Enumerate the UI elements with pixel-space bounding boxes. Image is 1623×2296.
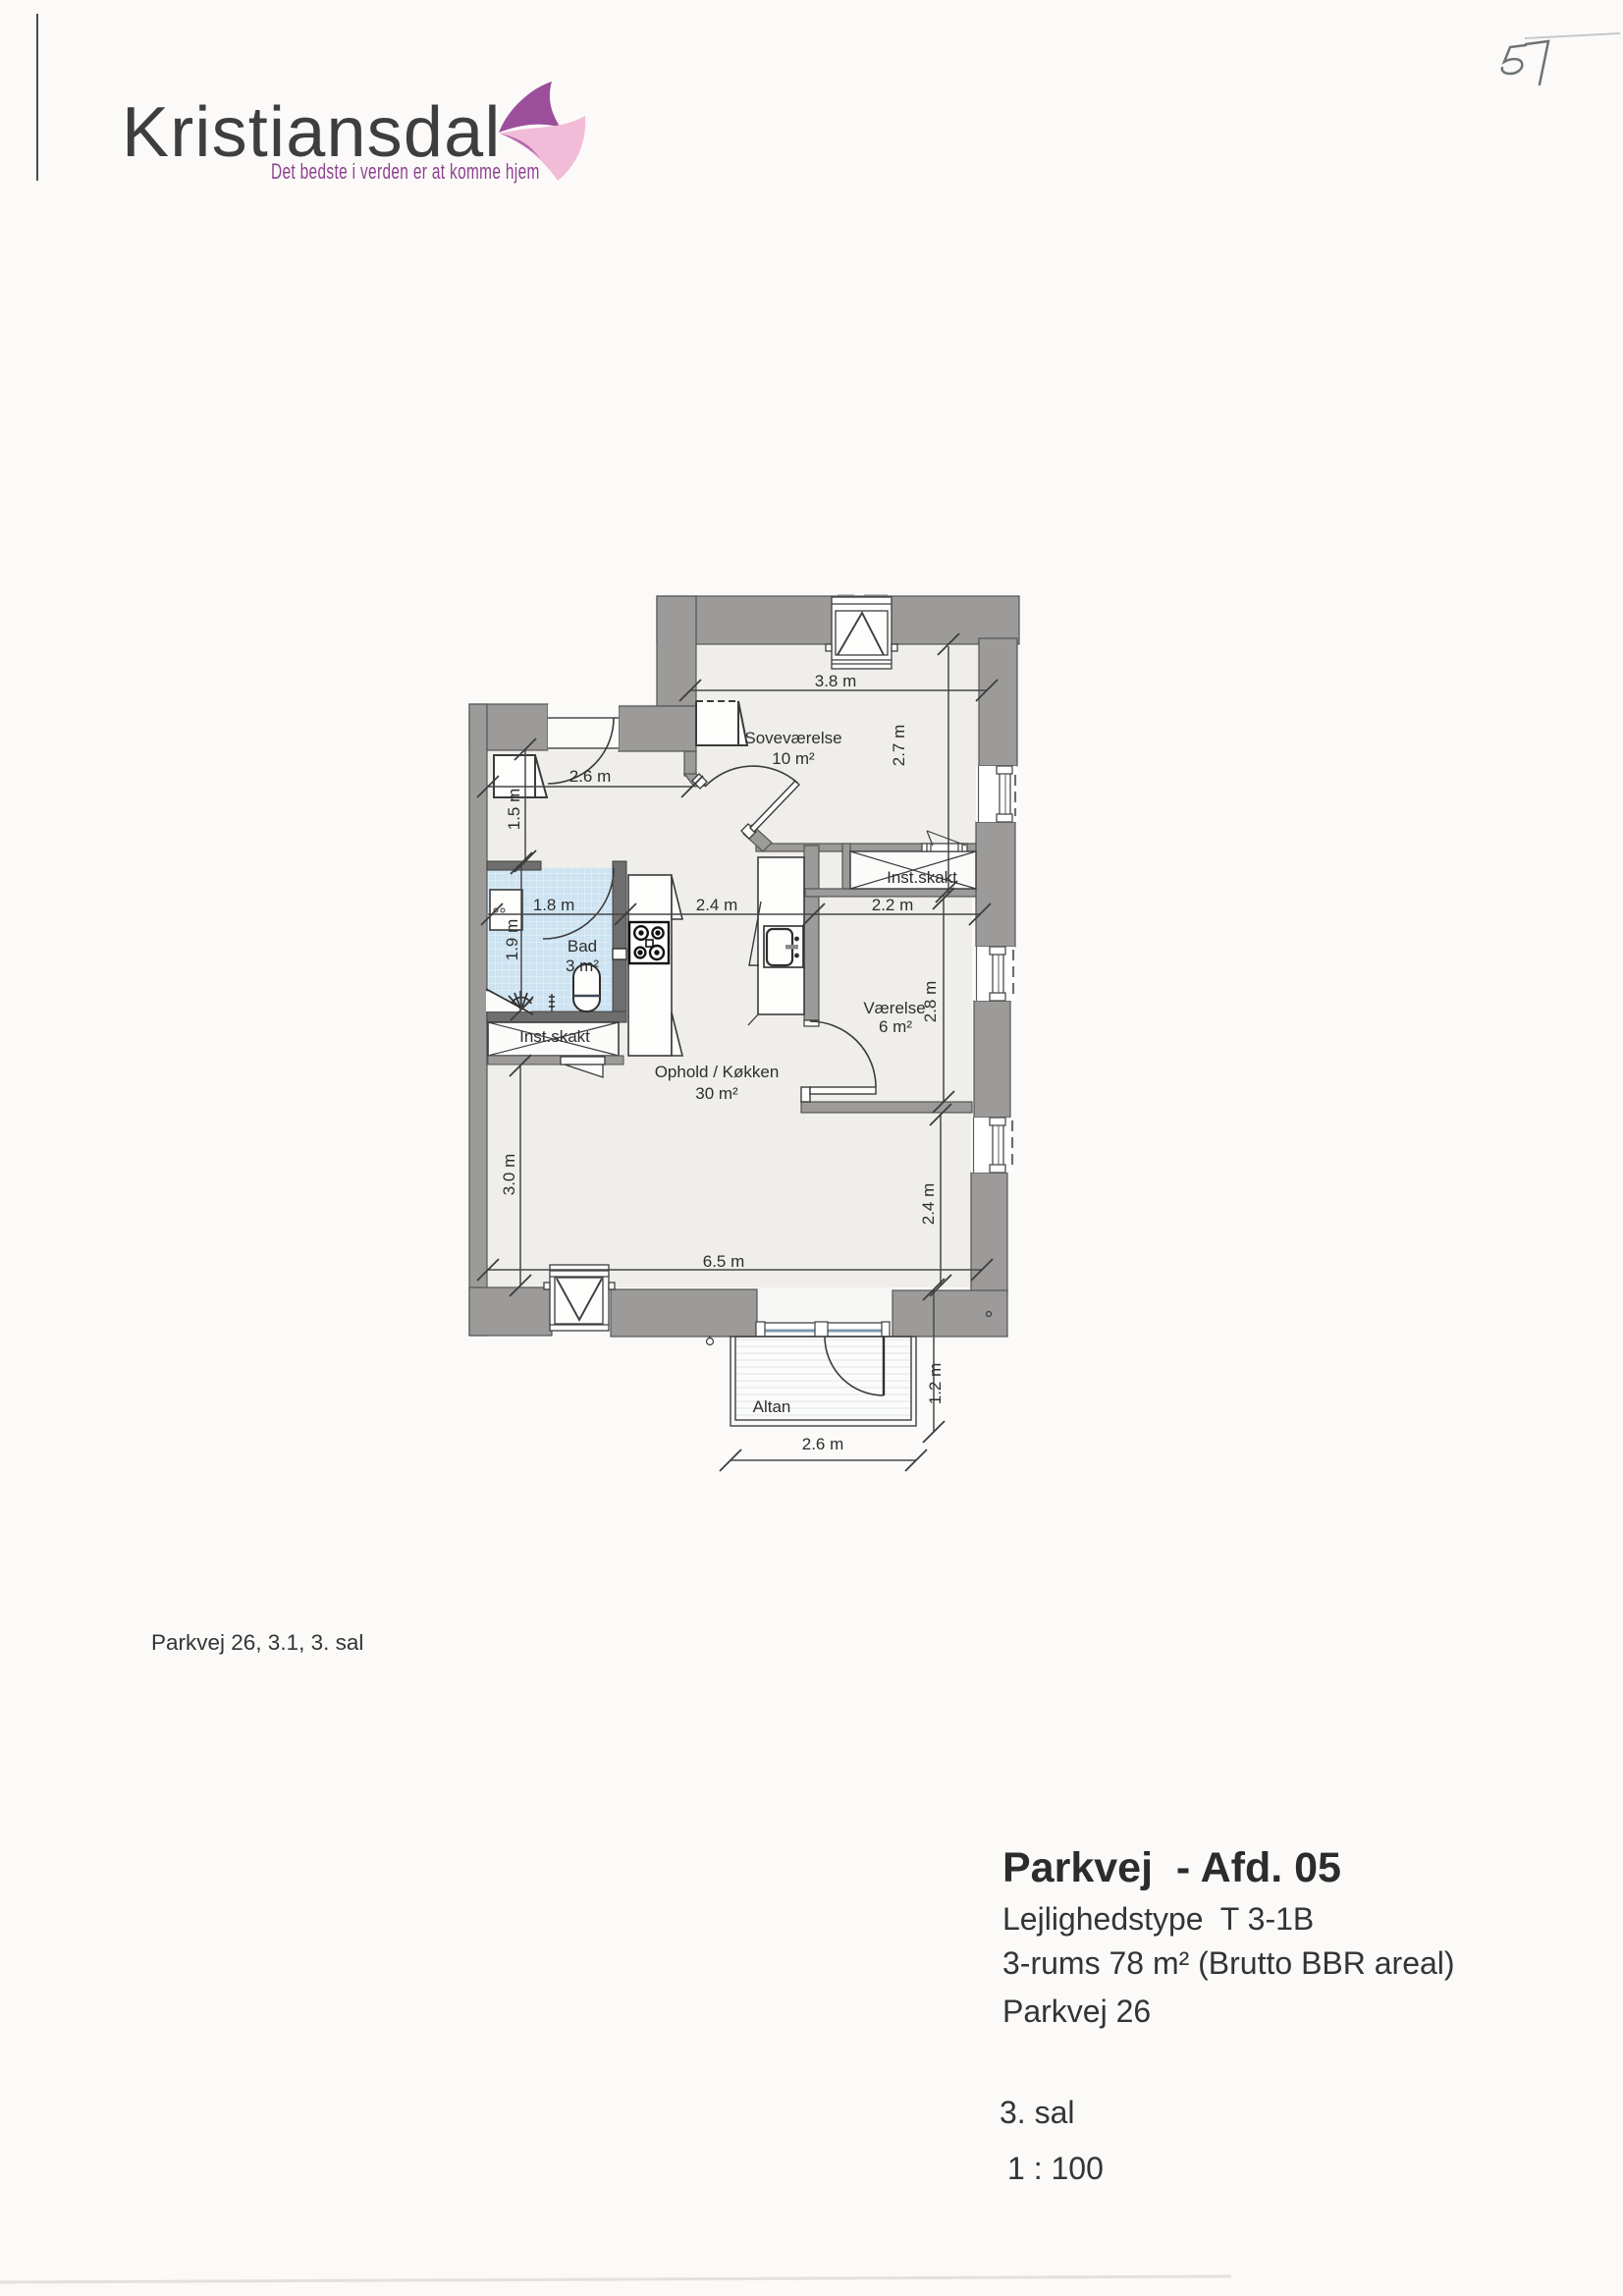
svg-text:Inst.skakt: Inst.skakt	[519, 1027, 590, 1046]
svg-text:2.8 m: 2.8 m	[921, 981, 940, 1023]
svg-text:Værelse: Værelse	[863, 999, 925, 1017]
svg-text:Altan: Altan	[753, 1397, 791, 1416]
svg-text:2.4 m: 2.4 m	[919, 1183, 938, 1226]
svg-text:6 m²: 6 m²	[879, 1017, 912, 1036]
svg-text:2.4 m: 2.4 m	[696, 896, 738, 914]
svg-text:2.7 m: 2.7 m	[890, 725, 908, 767]
svg-text:1.9 m: 1.9 m	[503, 919, 521, 961]
svg-text:1.5 m: 1.5 m	[505, 789, 523, 831]
svg-text:1.8 m: 1.8 m	[533, 896, 575, 914]
svg-text:2.6 m: 2.6 m	[569, 767, 612, 786]
svg-text:6.5 m: 6.5 m	[703, 1252, 745, 1271]
svg-text:2.6 m: 2.6 m	[802, 1435, 844, 1453]
svg-text:Soveværelse: Soveværelse	[744, 729, 841, 747]
svg-text:3.8 m: 3.8 m	[815, 672, 857, 690]
svg-text:3.0 m: 3.0 m	[500, 1154, 518, 1196]
svg-text:30 m²: 30 m²	[695, 1084, 738, 1103]
svg-text:3 m²: 3 m²	[566, 957, 599, 975]
svg-text:2.2 m: 2.2 m	[872, 896, 914, 914]
svg-text:Inst.skakt: Inst.skakt	[887, 868, 957, 887]
svg-text:10 m²: 10 m²	[772, 749, 815, 768]
svg-text:Bad: Bad	[568, 937, 597, 956]
svg-text:1.2 m: 1.2 m	[926, 1363, 945, 1405]
svg-text:Ophold / Køkken: Ophold / Køkken	[655, 1063, 780, 1081]
